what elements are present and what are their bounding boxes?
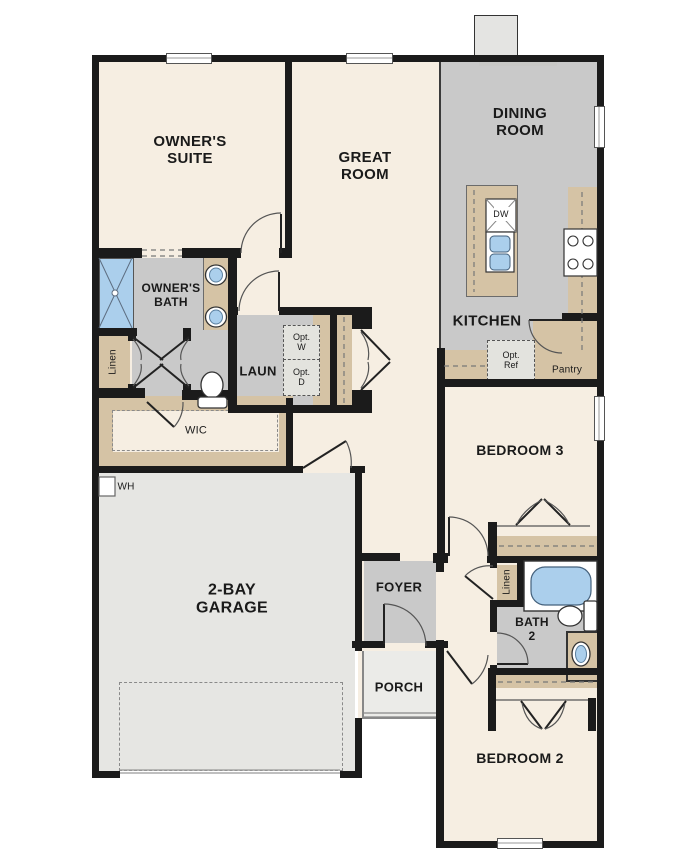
wall-hall-junction [433,553,448,563]
wall-laundry-bottom [228,405,372,413]
wall-owners-suite-bottom-3 [279,248,291,258]
laundry-label: LAUN [239,365,276,380]
kitchen-counter-bottom [441,350,487,379]
wall-garage-top-1 [92,466,303,473]
wall-kitchen-stub [437,348,445,387]
bath2-label: BATH 2 [515,616,549,644]
wall-linen-stub-top [128,328,136,341]
wall-toilet-stub-top [183,328,191,341]
dw-label: DW [493,209,508,219]
shower [99,258,134,330]
wall-hall-right-2 [490,600,497,632]
wall-closet-strip [330,307,337,413]
hall-closet [337,315,352,405]
optional-refrigerator-label: Opt. Ref [502,351,519,371]
wall-hall-linen-right [517,563,524,607]
wall-laundry-top-corner [352,307,372,329]
owners-linen-label: Linen [107,349,119,374]
window-dining [594,106,605,148]
optional-refrigerator: Opt. Ref [487,340,535,381]
wall-bath-laundry [228,258,237,413]
window-bedroom3 [594,396,605,441]
wall-foyer-bottom-left [352,641,385,648]
owners-vanity [203,258,229,330]
wall-laundry-bottom-corner [352,390,372,413]
bedroom3-closet-shelf [497,536,597,556]
window-bedroom2 [497,838,543,849]
porch-label: PORCH [375,681,423,696]
owners-bath-label: OWNER'S BATH [142,282,201,310]
garage-label: 2-BAY GARAGE [196,582,268,619]
optional-dryer-label: Opt. D [293,368,310,388]
floor-foyer [364,561,436,643]
wall-bath2-bottom [488,668,597,675]
wall-pantry-top [562,313,597,321]
wall-foyer-top [358,553,400,561]
wall-owners-suite-bottom-2 [182,248,241,258]
fireplace-chimney [474,15,518,59]
pantry-label: Pantry [552,364,582,376]
wall-exterior-left [92,55,99,778]
wall-garage-right-lower [355,718,362,778]
wall-laundry-top-2 [279,307,352,315]
wall-bed2-closet-stub-right [588,698,596,731]
wall-kitchen-bottom [437,379,604,387]
wall-owners-suite-bottom-1 [92,248,142,258]
wall-bed2-closet-stub-left [488,675,496,731]
wic-label: WIC [185,425,207,438]
window-great-room [346,53,393,64]
dining-room-label: DINING ROOM [493,105,547,140]
wall-exterior-right [597,55,604,848]
wall-owners-suite-right [285,55,292,258]
wall-wic-right [286,398,293,466]
kitchen-island [466,185,518,297]
floor-plan: Opt. W Opt. D Opt. Ref [0,0,695,859]
line-greatroom-dining [439,62,441,358]
wall-garage-bottom-left [92,771,120,778]
optional-dryer: Opt. D [283,359,320,396]
wall-toilet-stub-bottom [183,384,191,398]
foyer-label: FOYER [376,581,422,596]
garage-door-outline [119,682,343,771]
optional-washer-label: Opt. W [293,333,310,353]
bedroom3-label: BEDROOM 3 [476,442,564,458]
wall-bedroom3-left [437,387,445,563]
fireplace-hearth [479,62,557,66]
wall-bedroom3-bath2 [487,556,597,563]
wall-linen-bottom [92,388,145,398]
hall-linen-label: Linen [501,569,513,594]
wall-foyer-bottom-right [425,641,448,648]
wall-laundry-top-1 [228,307,238,315]
wh-label: WH [117,481,134,493]
great-room-label: GREAT ROOM [339,149,392,184]
optional-washer: Opt. W [283,325,320,361]
owners-suite-label: OWNER'S SUITE [153,133,226,168]
kitchen-counter-right [568,187,597,313]
floor-bedroom2 [437,718,600,845]
bedroom2-label: BEDROOM 2 [476,750,564,766]
window-owners-suite [166,53,212,64]
wall-bedroom2-left [436,640,444,848]
kitchen-label: KITCHEN [453,312,522,329]
